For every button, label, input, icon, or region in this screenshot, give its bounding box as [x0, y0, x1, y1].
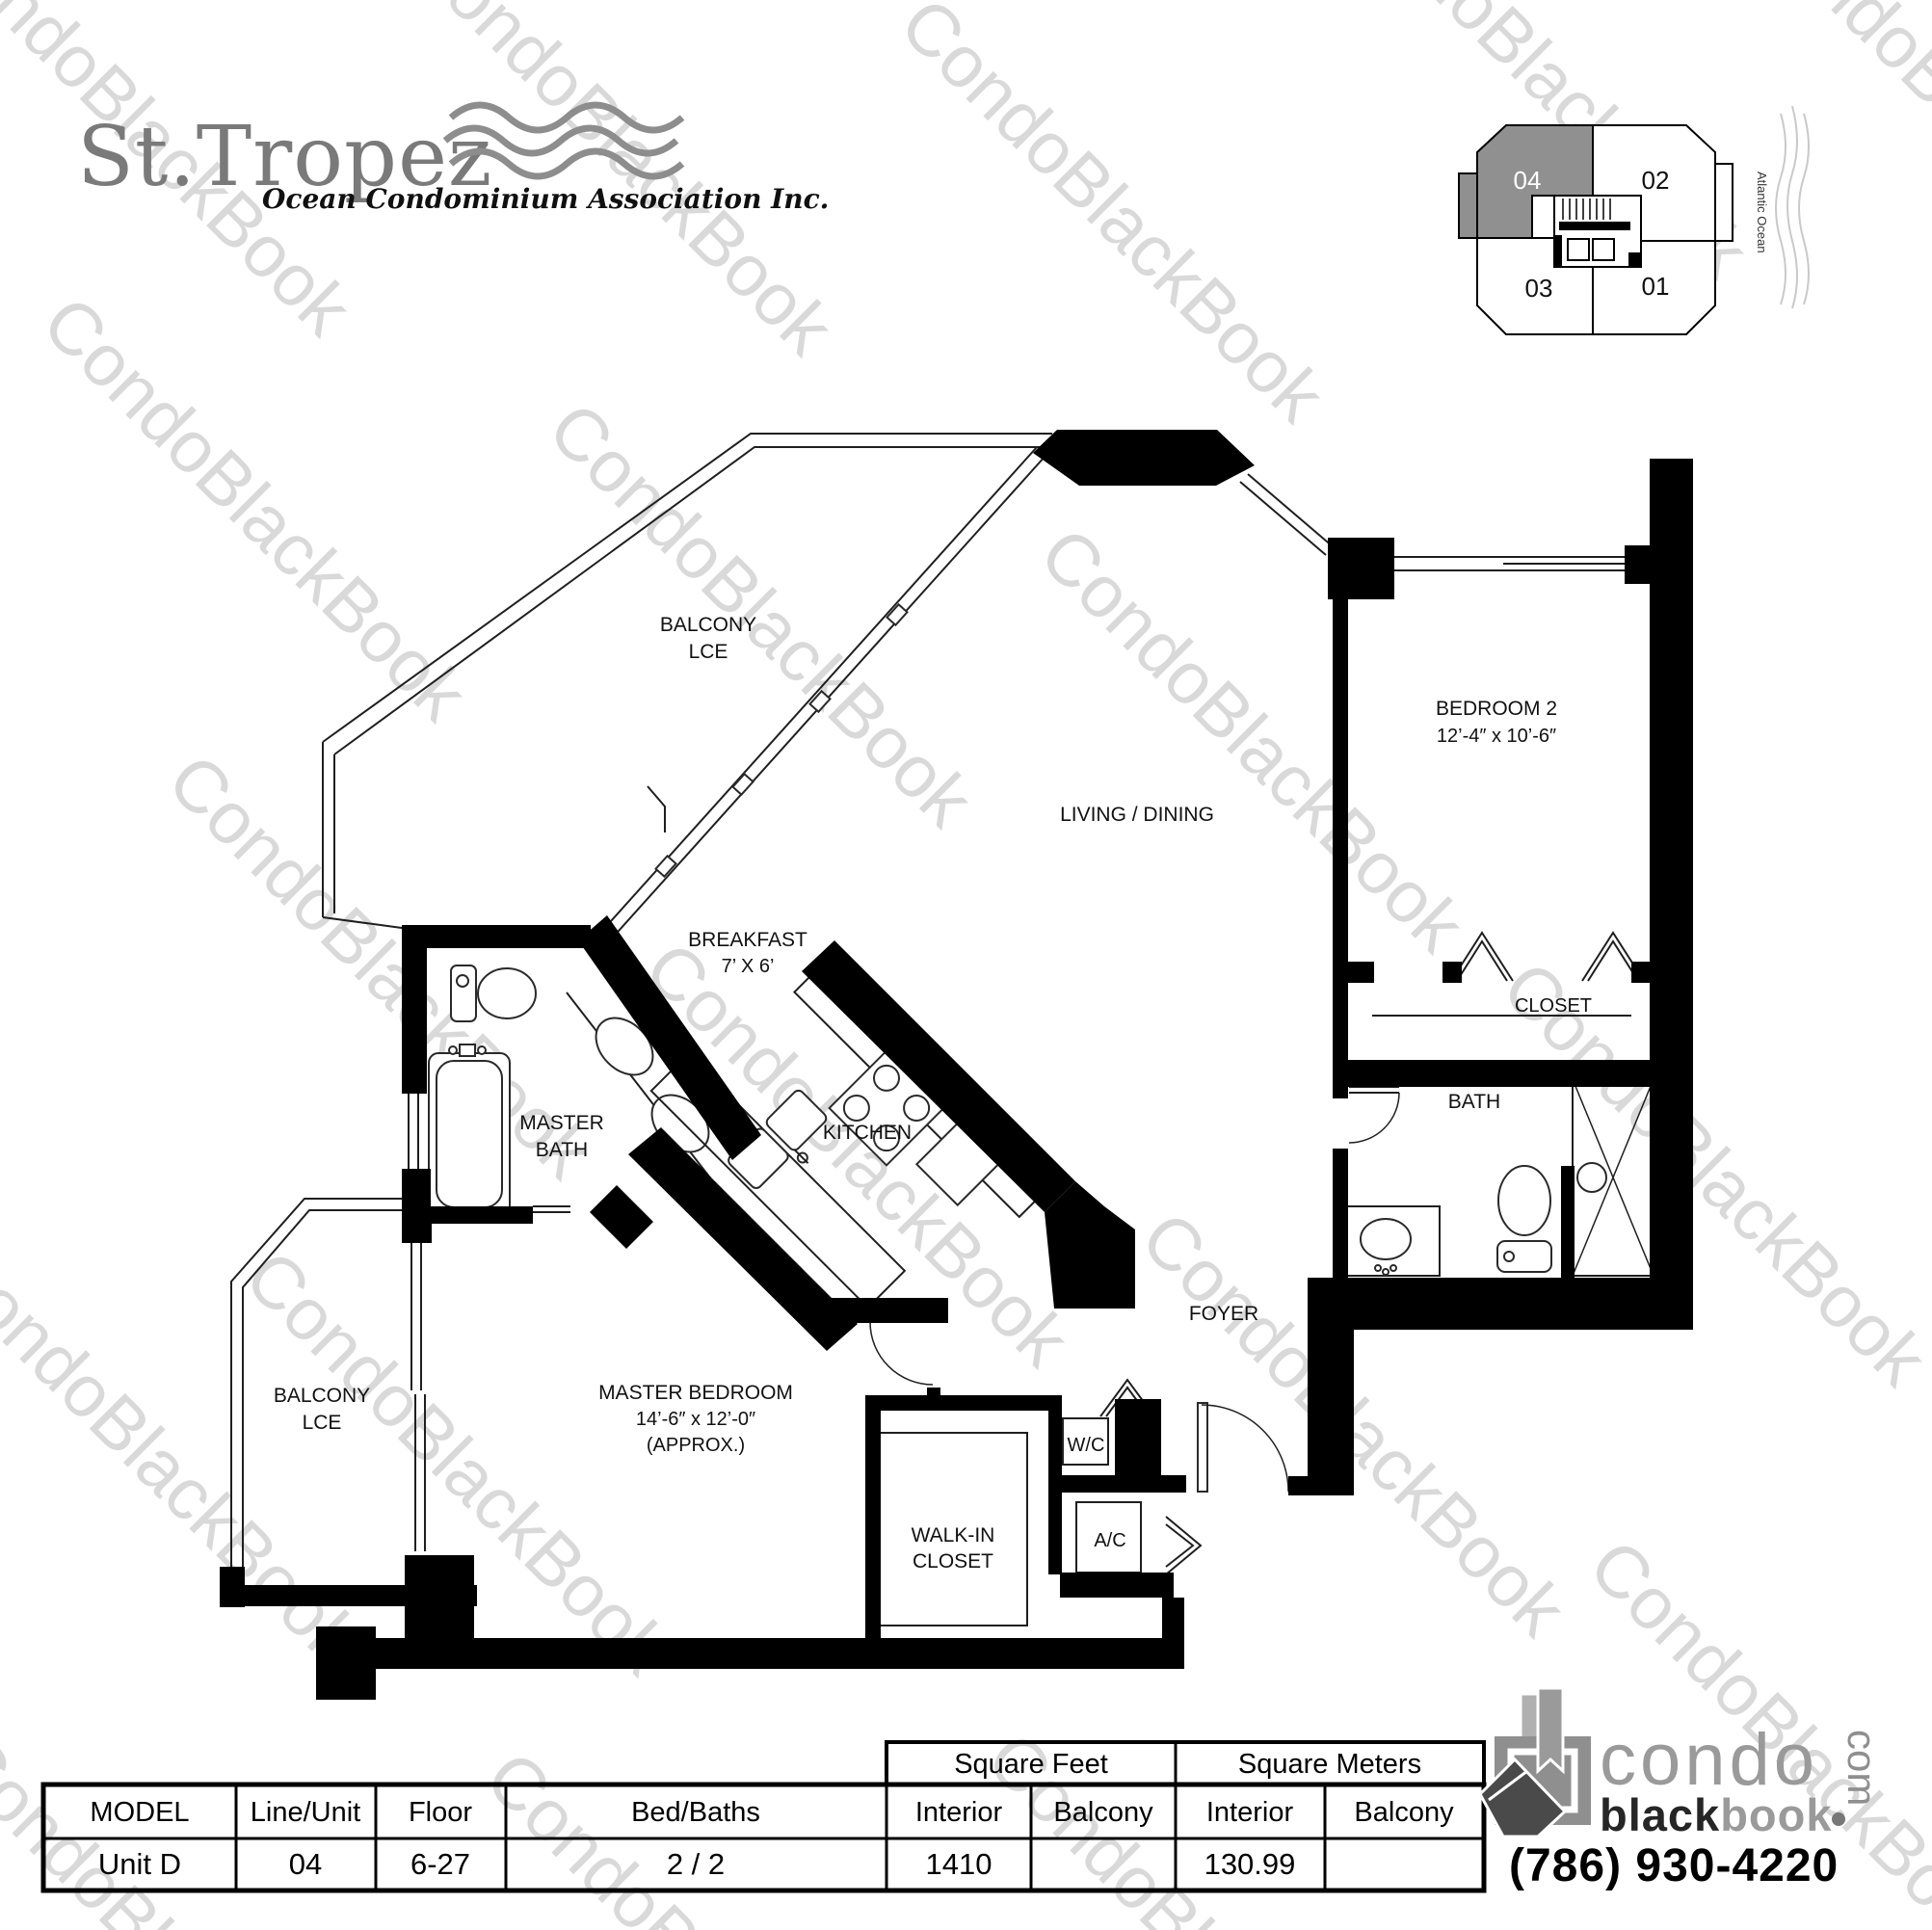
wall-masterbath-north [402, 925, 591, 948]
table-cell-model: Unit D [98, 1847, 181, 1881]
label-walkin: WALK-IN [912, 1524, 995, 1547]
watermark-text: CondoBlackBook [533, 387, 989, 843]
label-balcony-bottom-lce: LCE [303, 1412, 342, 1434]
master-bath-door [533, 1206, 570, 1212]
brand-subtitle: Ocean Condominium Association Inc. [262, 183, 829, 215]
bath2-door [1349, 1087, 1399, 1143]
bath2-toilet-icon [1497, 1166, 1551, 1272]
watermark-text: CondoBlackBook [470, 1736, 926, 1930]
bathtub-icon [429, 1044, 510, 1215]
label-master-bedroom: MASTER BEDROOM [598, 1382, 793, 1404]
wall-south [376, 1638, 1184, 1669]
wall-foyer-east [1308, 1330, 1354, 1495]
table-cell-interior-sf: 1410 [926, 1847, 992, 1881]
label-bedroom2: BEDROOM 2 [1436, 698, 1557, 720]
spec-table: Square Feet Square Meters MODEL Line/Uni… [43, 1742, 1484, 1890]
wall-ne-corner [1328, 538, 1394, 599]
label-wc: W/C [1068, 1435, 1105, 1456]
label-master-bedroom-note: (APPROX.) [647, 1435, 745, 1456]
table-header-floor: Floor [409, 1797, 472, 1828]
master-bedroom-door [870, 1316, 933, 1385]
label-breakfast-dims: 7’ X 6’ [722, 956, 775, 977]
ne-diagonal-window [1240, 474, 1334, 555]
watermark-text: CondoBlackBook [1733, 0, 1932, 332]
wall-kitchen-foyer-corner [1045, 1181, 1135, 1309]
keyplan-label-02: 02 [1642, 166, 1670, 195]
condoblackbook-icon [1480, 1688, 1591, 1837]
wall-top-header [1033, 430, 1255, 486]
wall-closet-bath [1347, 1060, 1693, 1087]
keyplan-label-03: 03 [1525, 274, 1553, 303]
balcony-door-mark [648, 786, 665, 833]
label-master-bath-2: BATH [536, 1139, 588, 1161]
ocean-waves-icon [1776, 106, 1809, 308]
bath2-vanity-icon [1347, 1206, 1440, 1276]
watermark-text: CondoBlackBook [27, 281, 483, 737]
table-header-line-unit: Line/Unit [251, 1797, 360, 1828]
keyplan-label-04: 04 [1514, 166, 1542, 195]
table-header-interior-sf: Interior [915, 1797, 1003, 1828]
wall-bath-south [1308, 1278, 1693, 1330]
watermark-text: CondoBlackBook [885, 0, 1340, 438]
label-foyer: FOYER [1189, 1303, 1258, 1325]
label-master-bedroom-dims: 14’-6″ x 12’-0″ [636, 1409, 755, 1430]
label-balcony-top: BALCONY [660, 614, 756, 636]
wall-living-bedroom2 [1333, 599, 1348, 1098]
label-breakfast: BREAKFAST [688, 929, 807, 951]
table-group-square-feet: Square Feet [954, 1749, 1108, 1780]
master-bath-window [409, 1092, 418, 1169]
table-cell-bed-baths: 2 / 2 [667, 1847, 725, 1881]
entry-door [1198, 1403, 1288, 1492]
wall-walkin-north [865, 1395, 1062, 1411]
table-header-interior-sm: Interior [1206, 1797, 1294, 1828]
table-header-model: MODEL [90, 1797, 189, 1828]
table-header-bed-baths: Bed/Baths [631, 1797, 760, 1828]
table-header-balcony-sf: Balcony [1053, 1797, 1153, 1828]
table-group-square-meters: Square Meters [1238, 1749, 1421, 1780]
table-header-balcony-sm: Balcony [1354, 1797, 1454, 1828]
label-bath: BATH [1448, 1091, 1500, 1113]
floorplan-canvas: CondoBlackBook CondoBlackBook CondoBlack… [0, 0, 1932, 1930]
label-closet: CLOSET [1515, 995, 1592, 1017]
label-ac: A/C [1094, 1530, 1125, 1551]
footer-logo-dot-icon [1832, 1812, 1845, 1826]
header-logo: St.Tropez Ocean Condominium Association … [77, 105, 829, 215]
bedroom2-window [1390, 557, 1627, 570]
keyplan-unit-04-bump [1459, 173, 1477, 238]
label-kitchen: KITCHEN [823, 1122, 912, 1144]
keyplan: 04 02 03 01 Atlantic Ocean [1459, 106, 1809, 334]
label-bedroom2-dims: 12’-4″ x 10’-6″ [1437, 726, 1556, 747]
table-cell-line-unit: 04 [289, 1847, 322, 1881]
keyplan-unit-02-bump [1715, 164, 1733, 241]
ac-chevron-door [1166, 1517, 1201, 1574]
toilet-icon [451, 965, 536, 1021]
keyplan-core-icon [1554, 196, 1641, 267]
wall-east [1650, 459, 1693, 1278]
footer-logo-book: book [1720, 1789, 1832, 1840]
wall-walkin-west [865, 1395, 881, 1640]
keyplan-label-01: 01 [1642, 272, 1670, 301]
footer-phone: (786) 930-4220 [1509, 1840, 1839, 1891]
footer-logo-tld: com [1839, 1730, 1885, 1806]
footer-logo-black: black [1600, 1789, 1720, 1840]
label-balcony-bottom: BALCONY [274, 1385, 370, 1407]
label-walkin-2: CLOSET [913, 1550, 993, 1573]
label-balcony-top-lce: LCE [689, 641, 728, 663]
watermark-text: CondoBlackBook [1024, 513, 1480, 968]
floorplan-sheet: CondoBlackBook CondoBlackBook CondoBlack… [0, 0, 1932, 1930]
table-cell-floor: 6-27 [410, 1847, 470, 1881]
label-master-bath: MASTER [519, 1112, 604, 1134]
svg-text:blackbook: blackbook [1600, 1789, 1832, 1840]
label-living-dining: LIVING / DINING [1060, 804, 1214, 826]
ocean-label: Atlantic Ocean [1755, 172, 1769, 253]
table-cell-interior-sm: 130.99 [1204, 1847, 1296, 1881]
